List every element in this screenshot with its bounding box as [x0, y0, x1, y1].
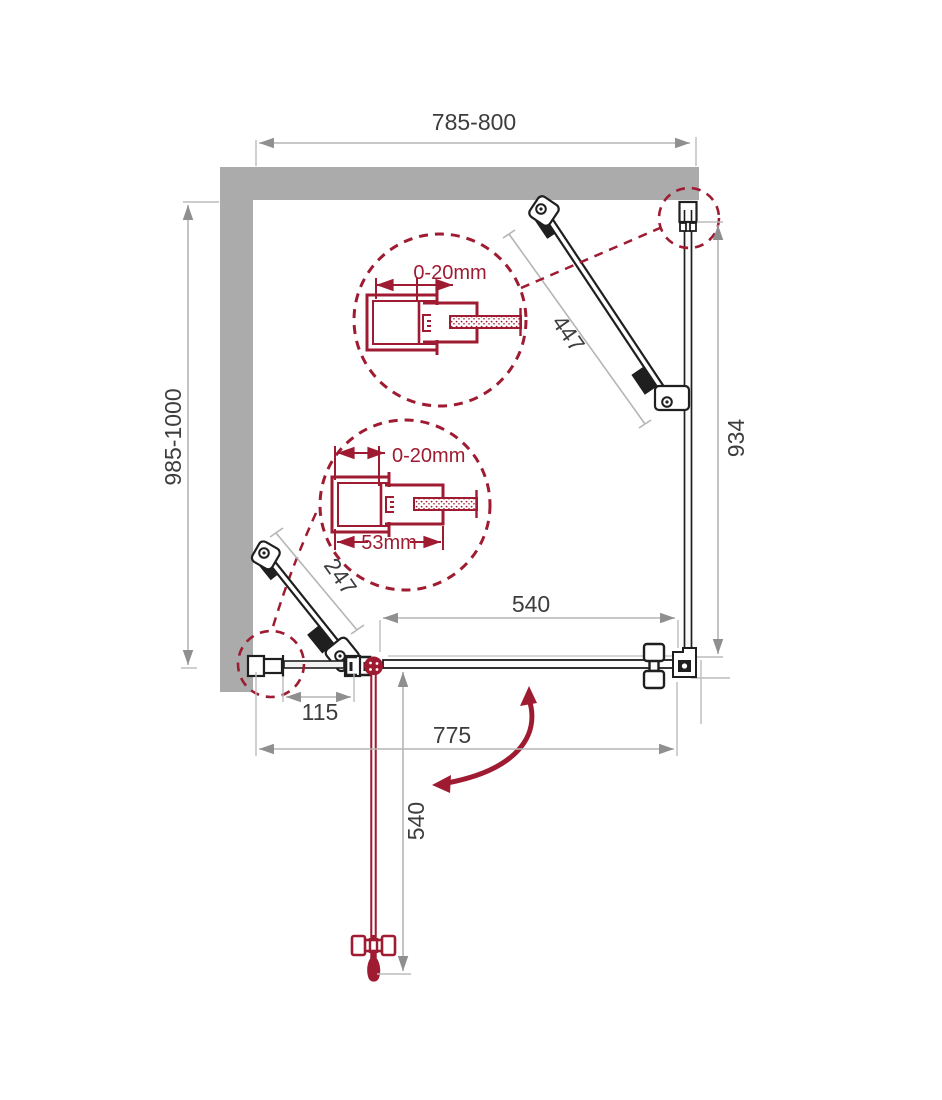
dim-side-panel-label: 934	[723, 419, 749, 458]
wall-profile-section-bottom	[332, 472, 477, 537]
dimension-overall-width: 785-800	[256, 109, 696, 166]
technical-drawing-page: 785-800 985-1000	[0, 0, 942, 1100]
dim-support-bar-right-label: 447	[547, 310, 590, 356]
door-pivot	[364, 657, 383, 676]
wall-profile-section-top	[367, 290, 521, 355]
door-closed-position	[383, 644, 680, 688]
dim-wall-segment-label: 115	[302, 699, 339, 725]
dim-overall-depth-label: 985-1000	[160, 388, 186, 485]
door-open-position	[352, 675, 395, 982]
dim-front-width-label: 775	[433, 722, 471, 748]
dimension-door-width: 540	[377, 672, 429, 974]
dim-overall-width-label: 785-800	[432, 109, 516, 135]
dim-door-width-label: 540	[403, 802, 429, 840]
detail-top-adjustment-label: 0-20mm	[413, 262, 486, 284]
dimension-side-panel: 934	[697, 222, 749, 657]
dimension-wall-segment: 115	[283, 674, 354, 725]
shower-enclosure-plan: 785-800 985-1000	[0, 0, 942, 1100]
corner-bracket	[673, 648, 730, 724]
dimension-overall-depth: 985-1000	[160, 202, 219, 668]
dimension-opening-width: 540	[380, 591, 678, 652]
wall-profile-bracket-top	[680, 202, 697, 231]
wall-top	[220, 167, 699, 200]
side-glass-panel	[659, 188, 719, 650]
wall-left	[220, 200, 253, 692]
door-open-handle	[352, 936, 395, 955]
detail-bottom-width-label: 53mm	[361, 532, 417, 554]
door-bottom-seal	[367, 955, 380, 982]
support-bar-left: 247	[250, 528, 364, 676]
dim-opening-width-label: 540	[512, 591, 550, 617]
detail-bottom-adjustment-label: 0-20mm	[392, 445, 465, 467]
bar-hinge-bottom	[655, 386, 689, 410]
